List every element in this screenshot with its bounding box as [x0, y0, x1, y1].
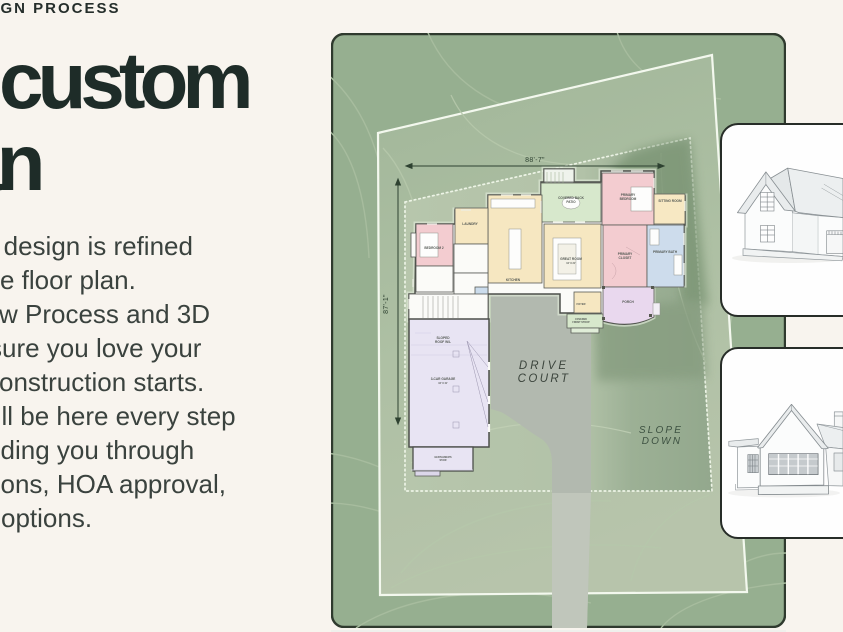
- svg-text:34' X 41': 34' X 41': [438, 382, 448, 385]
- svg-text:ROOF W/L: ROOF W/L: [435, 340, 451, 344]
- svg-text:PORCH: PORCH: [622, 300, 634, 304]
- svg-text:SITTING ROOM: SITTING ROOM: [658, 199, 682, 203]
- svg-text:KITCHEN: KITCHEN: [506, 278, 521, 282]
- svg-text:16' X 21': 16' X 21': [566, 262, 576, 265]
- svg-text:SLOPE: SLOPE: [639, 425, 683, 436]
- svg-text:87'-1": 87'-1": [383, 294, 390, 314]
- svg-text:GREAT ROOM: GREAT ROOM: [560, 257, 582, 261]
- svg-text:CLOSET: CLOSET: [619, 256, 632, 260]
- svg-text:88'-7": 88'-7": [525, 157, 545, 164]
- svg-text:COURT: COURT: [518, 373, 571, 385]
- svg-text:FOYER: FOYER: [577, 302, 586, 306]
- svg-text:FRONT STOOP: FRONT STOOP: [572, 321, 590, 324]
- svg-text:DRIVE: DRIVE: [519, 360, 569, 372]
- svg-text:3-CAR GARAGE: 3-CAR GARAGE: [431, 377, 456, 381]
- svg-text:BEDROOM: BEDROOM: [620, 197, 637, 201]
- svg-text:BEDROOM 2: BEDROOM 2: [424, 246, 444, 250]
- svg-text:DOWN: DOWN: [642, 436, 682, 447]
- svg-text:PATIO: PATIO: [566, 200, 576, 204]
- svg-text:LAUNDRY: LAUNDRY: [462, 222, 478, 226]
- svg-text:PRIMARY BATH: PRIMARY BATH: [653, 250, 678, 254]
- svg-text:STAIR: STAIR: [440, 459, 447, 462]
